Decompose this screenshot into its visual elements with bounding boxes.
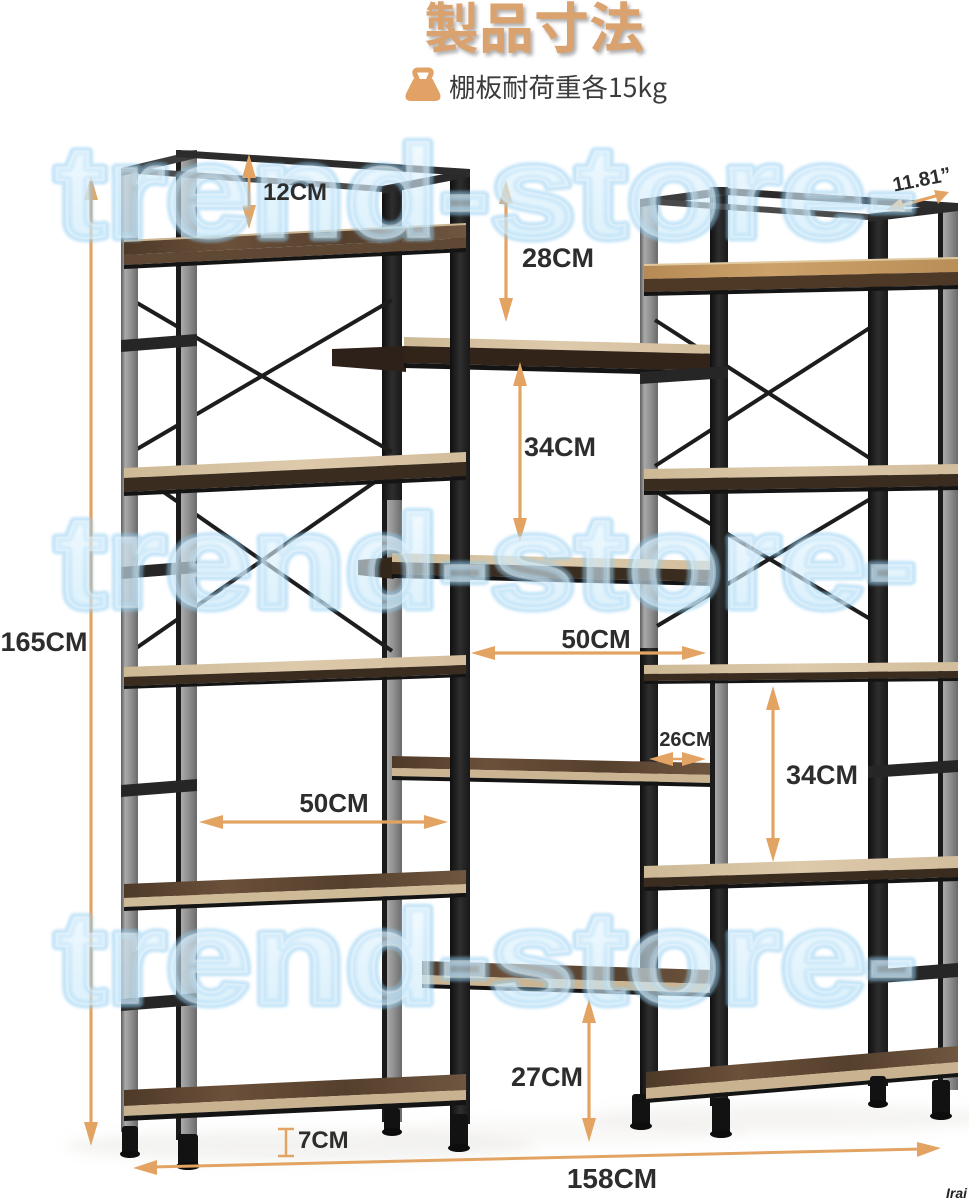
svg-text:26CM: 26CM	[659, 729, 712, 751]
svg-text:27CM: 27CM	[511, 1062, 583, 1092]
svg-text:trend-store-: trend-store-	[55, 884, 917, 1031]
svg-text:7CM: 7CM	[298, 1127, 349, 1154]
svg-text:Irai: Irai	[946, 1185, 968, 1200]
svg-text:165CM: 165CM	[0, 627, 87, 657]
svg-text:50CM: 50CM	[299, 788, 368, 818]
svg-text:50CM: 50CM	[561, 624, 630, 654]
svg-text:34CM: 34CM	[524, 432, 596, 462]
svg-text:12CM: 12CM	[263, 179, 327, 206]
svg-text:158CM: 158CM	[567, 1163, 657, 1194]
svg-text:28CM: 28CM	[522, 243, 594, 273]
svg-text:trend-store-: trend-store-	[55, 118, 917, 265]
svg-text:34CM: 34CM	[786, 760, 858, 790]
svg-text:trend-store-: trend-store-	[55, 488, 917, 635]
